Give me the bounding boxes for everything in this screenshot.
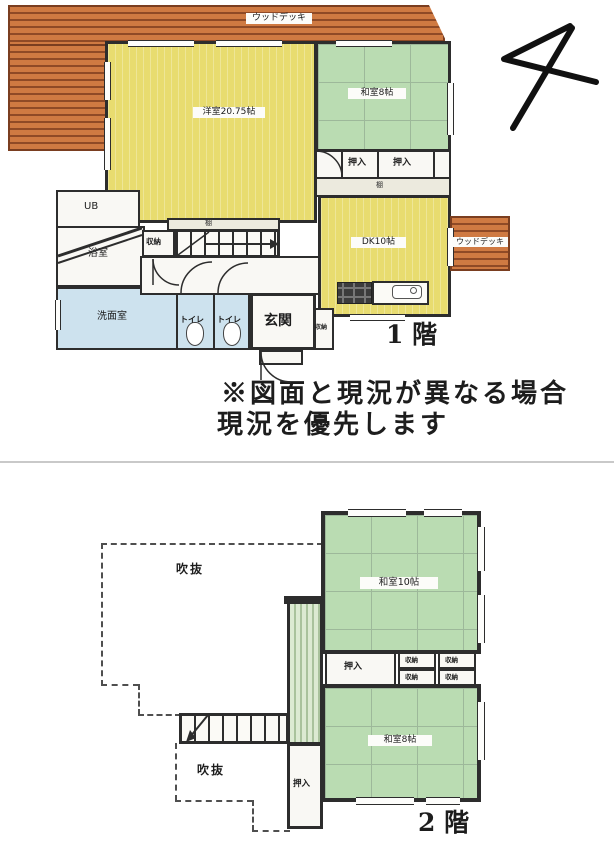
storage-2f-c-label: 収納 [405,674,418,681]
toilet-1-fixture [186,322,204,346]
void-dash-left [101,543,103,686]
void-dash-top [101,543,323,545]
void-dash-low-left [175,743,177,801]
scan-divider [0,461,614,463]
closet-1f-a-label: 押入 [348,159,366,168]
window-japanese-top [336,40,392,47]
window-living-left-1 [104,62,111,100]
storage-2f-b-label: 収納 [445,657,458,664]
kitchen-stove [337,282,372,304]
roof-band-cap [284,596,326,604]
handwritten-number-4-stroke2 [513,28,572,128]
window-2f-top-1 [348,509,406,517]
window-2f-bottom-2 [426,797,460,805]
kitchen-faucet [410,287,417,294]
void-label-upper: 吹抜 [176,563,204,576]
stairs-2f [179,713,289,744]
floor2-caption: 2 階 [418,810,469,836]
note-line2: 現況を優先します [217,412,449,439]
entrance-porch [259,350,303,365]
room-dk-label: DK10帖 [351,237,406,248]
wood-deck-right-label: ウッドデッキ [452,237,508,247]
room-washroom-label: 洗面室 [97,312,127,323]
window-2f-right-3 [477,702,485,760]
closet-2f-top-label: 押入 [344,663,362,672]
window-living-top-2 [216,40,282,47]
shelf-strip-stairs-label: 棚 [205,220,212,227]
window-2f-right-2 [477,595,485,643]
window-2f-bottom-1 [356,797,414,805]
window-2f-right-1 [477,527,485,571]
window-japanese-right [447,83,454,135]
void-dash-step1 [101,684,139,686]
void-dash-low-right [252,800,254,831]
note-line1: ※図面と現況が異なる場合 [221,381,569,408]
room-living-label: 洋室20.75帖 [193,107,265,118]
storage-by-stairs-label: 収納 [146,238,161,246]
window-2f-top-2 [424,509,462,517]
toilet-2-fixture [223,322,241,346]
scanned-floorplan-page: { "page": { "note_line1": "※図面と現況が異なる場合"… [0,0,614,846]
window-dk-bottom [350,314,405,321]
room-japanese-10-label: 和室10帖 [360,577,438,589]
floor1-caption: 1 階 [386,322,437,348]
void-dash-low-bottom [175,800,253,802]
closet-filler-1f [433,150,451,179]
hallway-1f [140,256,320,295]
storage-2f-d-label: 収納 [445,674,458,681]
void-label-lower: 吹抜 [197,764,225,777]
room-entrance-label: 玄関 [264,314,292,329]
room-ub-label: UB [84,202,98,213]
wood-deck-left [8,44,107,151]
void-dash-step2 [138,684,140,715]
window-washroom-left [55,300,61,330]
void-dash-step3 [138,714,181,716]
kitchen-sink [392,285,422,299]
stairs-1f [175,229,280,258]
toilet-2-label: トイレ [217,316,241,324]
toilet-1-label: トイレ [180,316,204,324]
closet-door-bay-1f [315,150,343,179]
closet-2f-left-label: 押入 [293,780,310,789]
shelf-strip-1f [315,177,451,197]
wood-deck-top-label: ウッドデッキ [246,13,312,24]
room-japanese-8-2f-label: 和室8帖 [368,735,432,746]
handwritten-number-4-stroke1 [504,26,596,82]
window-living-left-2 [104,118,111,170]
storage-by-entrance-label: 収納 [315,325,327,331]
room-bath-label: 浴室 [88,249,108,260]
storage-2f-a-label: 収納 [405,657,418,664]
void-dash-low-end [252,830,290,832]
room-japanese-8-1f-label: 和室8帖 [348,88,406,99]
shelf-strip-label: 棚 [376,182,383,189]
window-living-top-1 [128,40,194,47]
closet-1f-b-label: 押入 [393,159,411,168]
roof-band-2f [287,599,323,745]
